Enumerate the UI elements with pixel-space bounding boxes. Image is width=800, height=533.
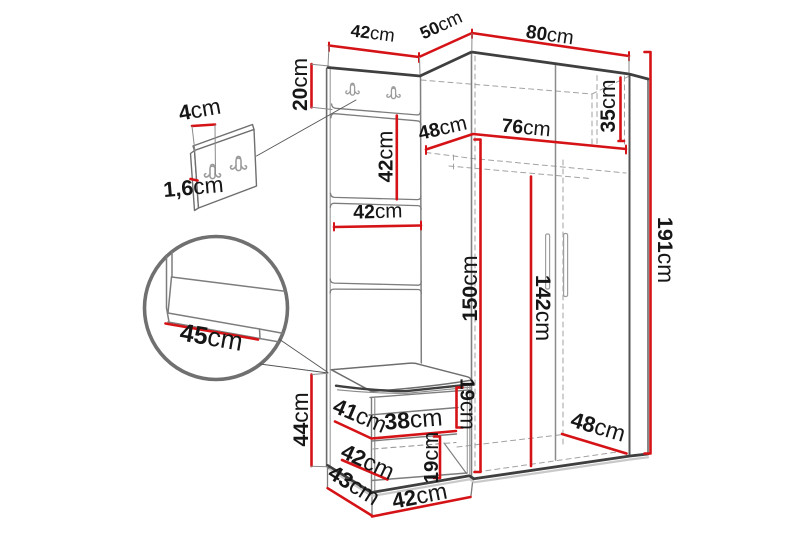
svg-text:19cm: 19cm [456,378,481,430]
svg-text:142cm: 142cm [531,275,557,341]
svg-text:76cm: 76cm [501,114,552,142]
svg-text:38cm: 38cm [383,404,443,435]
svg-text:191cm: 191cm [653,217,679,283]
svg-text:44cm: 44cm [287,392,313,446]
svg-text:42cm: 42cm [353,199,403,223]
svg-text:35cm: 35cm [595,79,620,132]
svg-text:20cm: 20cm [287,58,312,111]
svg-text:150cm: 150cm [456,255,482,321]
svg-text:19cm: 19cm [418,432,443,484]
svg-text:42cm: 42cm [373,131,398,183]
